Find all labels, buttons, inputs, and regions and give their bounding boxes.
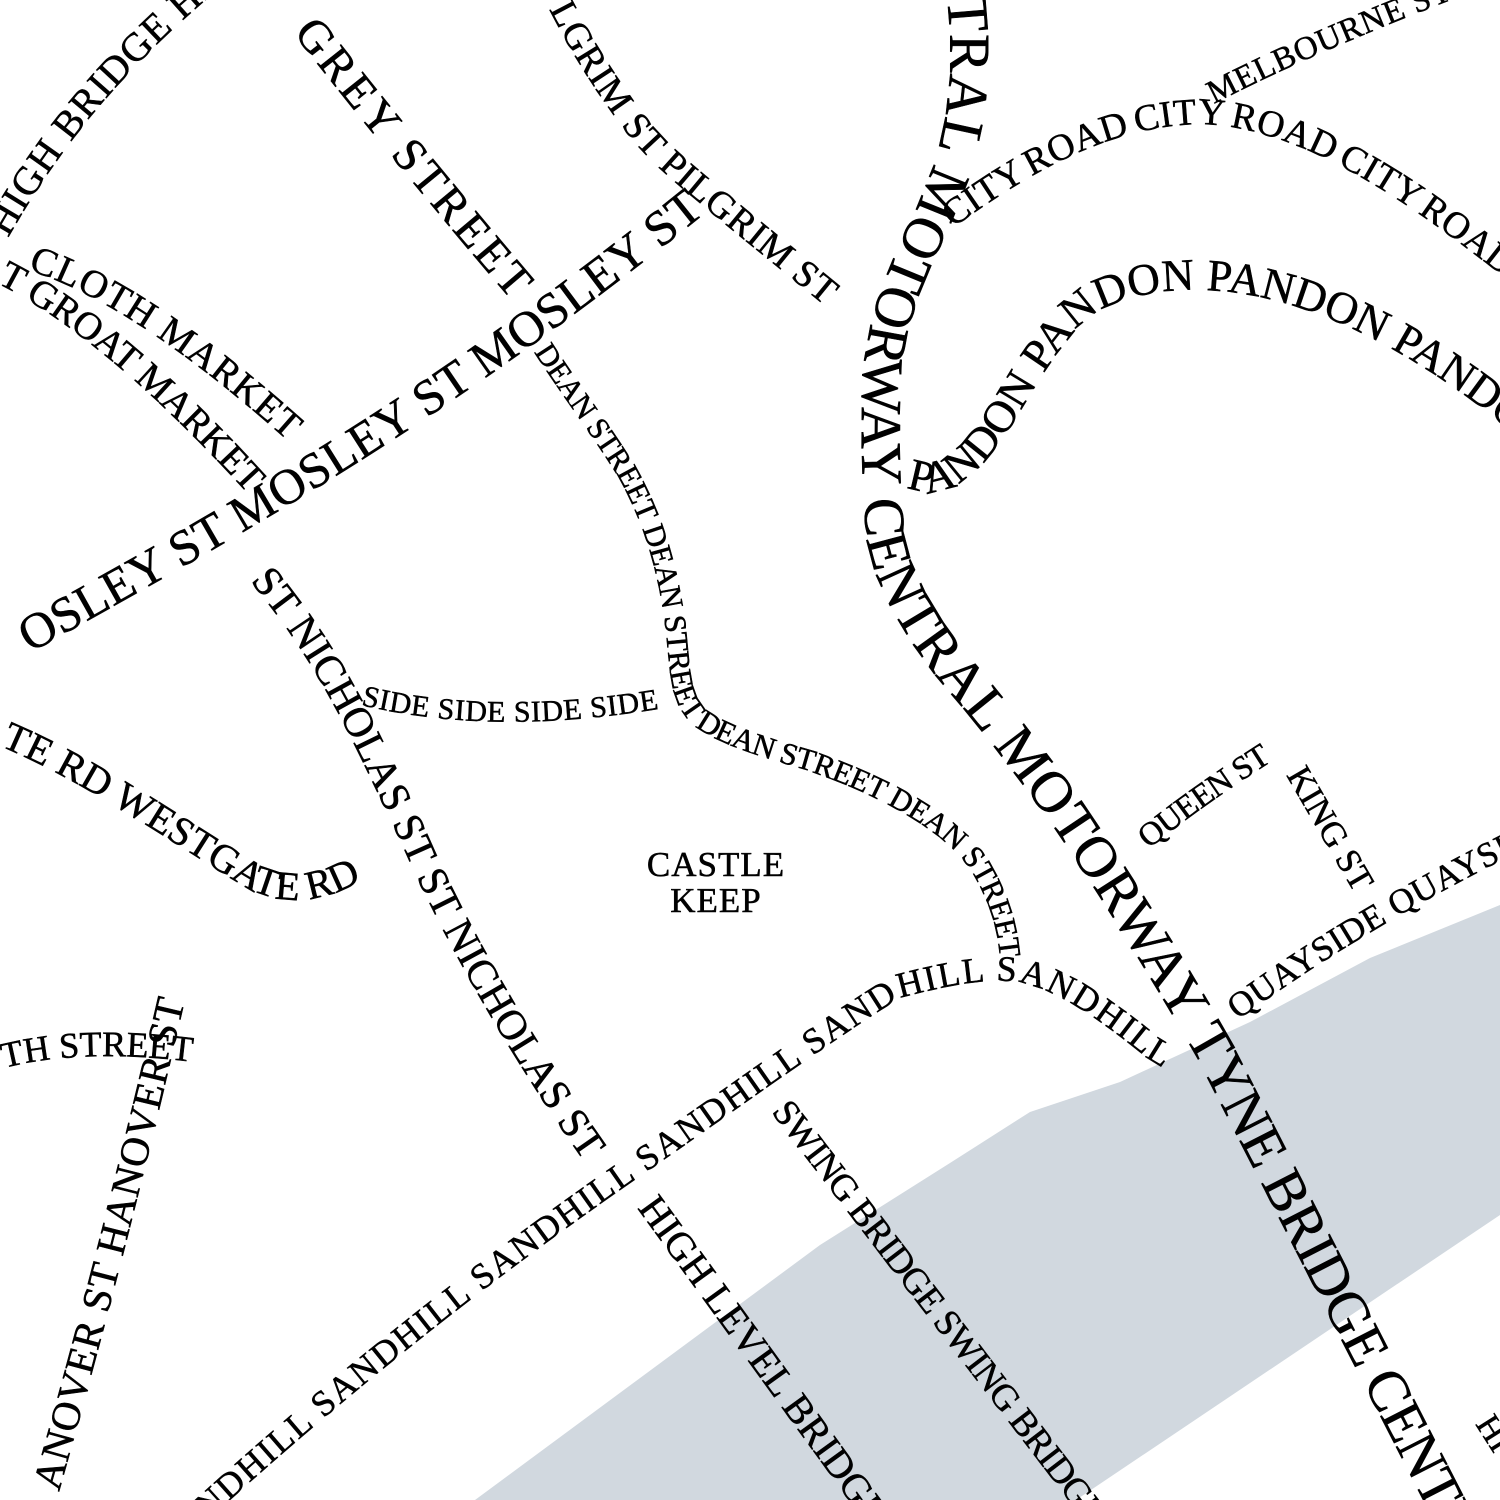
svg-text:CASTLE: CASTLE xyxy=(647,845,785,884)
svg-text:KEEP: KEEP xyxy=(670,881,762,920)
